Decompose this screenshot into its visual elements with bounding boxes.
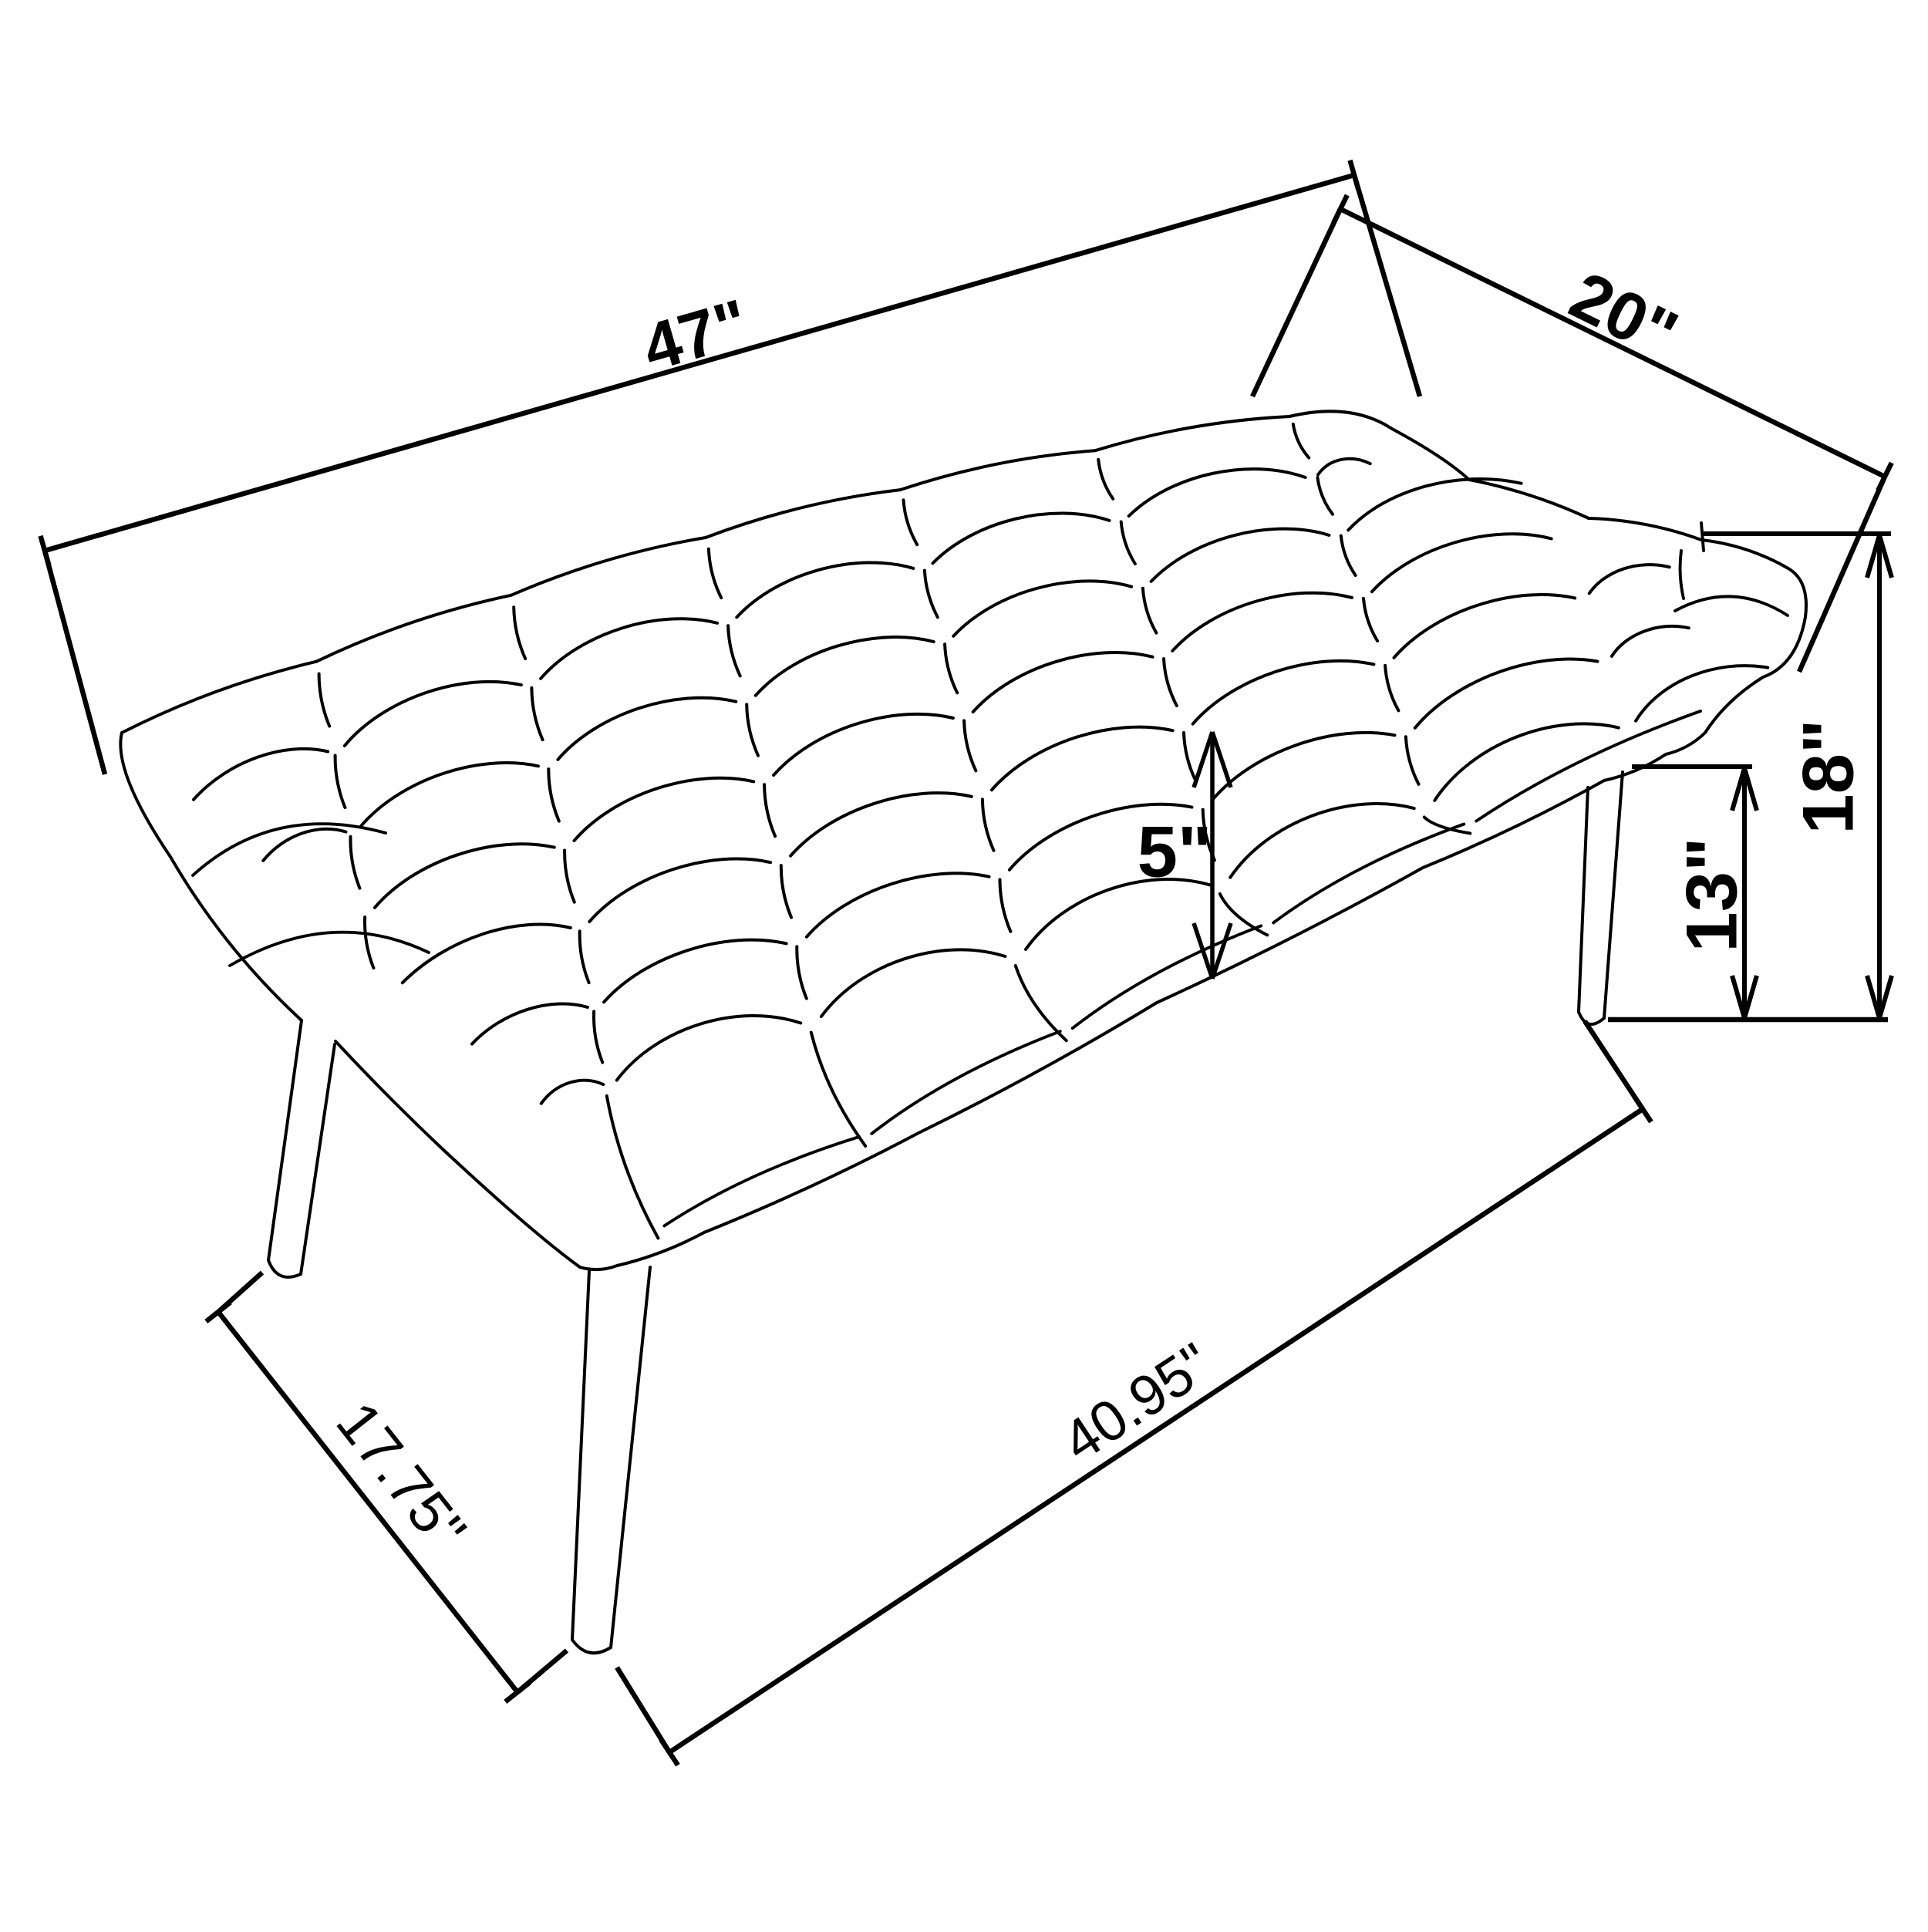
svg-text:13": 13" — [1671, 837, 1752, 952]
svg-text:18": 18" — [1788, 719, 1869, 834]
svg-text:5": 5" — [1138, 811, 1212, 892]
